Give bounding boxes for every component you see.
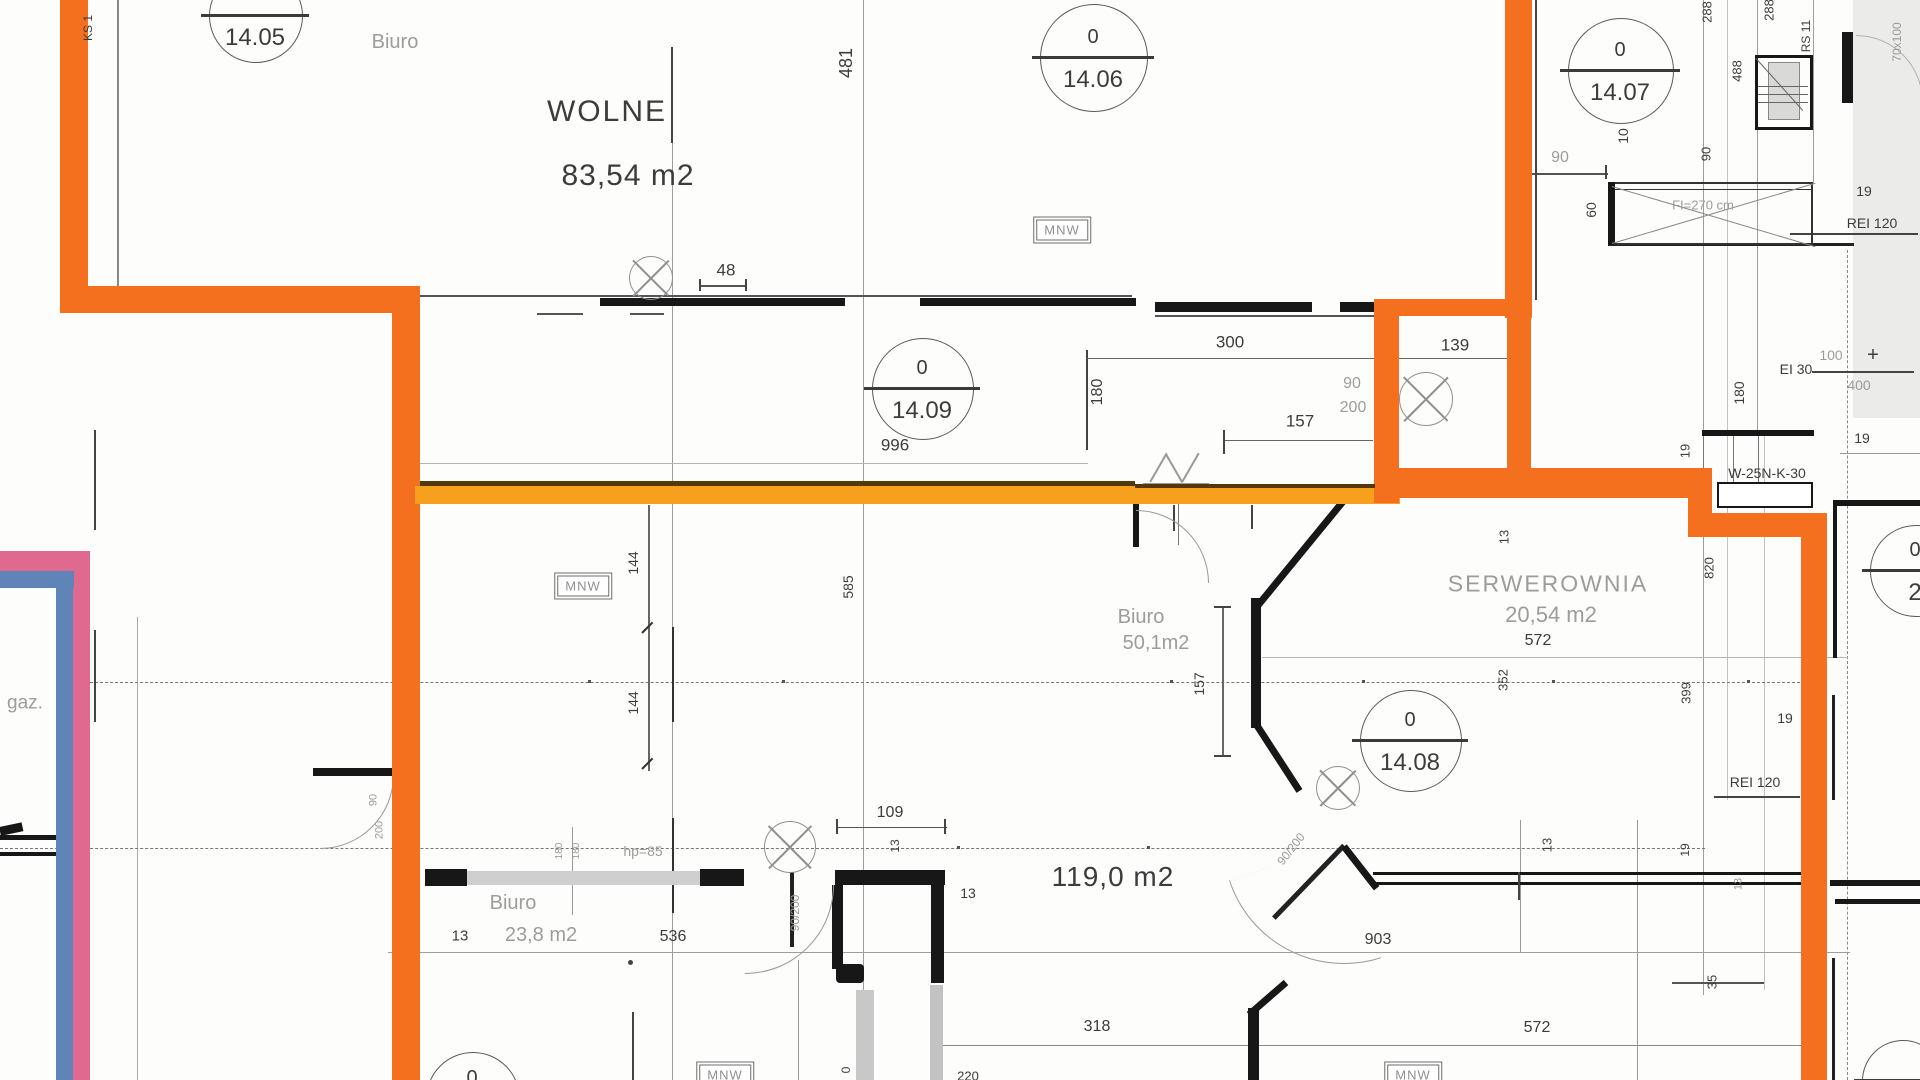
dimension-line xyxy=(1530,173,1608,175)
room-boundary-line xyxy=(420,463,1088,464)
wall-chamfer xyxy=(1254,724,1302,793)
dimension-label: 19 xyxy=(1854,431,1870,445)
dimension-label: 10 xyxy=(1616,128,1630,144)
dimension-label: 820 xyxy=(1703,557,1716,579)
door-size-label: 200 xyxy=(375,821,386,839)
bubble-divider-line xyxy=(864,387,980,390)
door-size-label: 90 xyxy=(1343,376,1361,392)
room-area-label: 23,8 m2 xyxy=(505,925,577,945)
dimension-label: 13 xyxy=(1541,838,1554,852)
wall-over-highlight xyxy=(1135,484,1375,488)
room-number-num: 14.07 xyxy=(1590,81,1650,105)
dimension-tick xyxy=(944,819,946,834)
room-number-num: 14.08 xyxy=(1380,751,1440,775)
dx-damper-icon xyxy=(629,256,673,300)
dimension-label: 536 xyxy=(660,929,687,945)
bubble-divider-line xyxy=(1352,739,1468,742)
room-number-num: 14.05 xyxy=(225,26,285,50)
dimension-label: 13 xyxy=(889,839,901,852)
bubble-divider-line xyxy=(201,14,309,17)
centerline-dot xyxy=(1170,680,1173,683)
dimension-tick xyxy=(94,430,96,530)
highlight-path-segment xyxy=(1399,468,1710,498)
centerline-dot xyxy=(1362,680,1365,683)
dimension-line xyxy=(1840,453,1920,454)
wall xyxy=(1833,500,1837,658)
wall xyxy=(1340,302,1376,312)
dx-damper-icon xyxy=(1399,372,1453,426)
highlight-path-segment xyxy=(1505,0,1532,318)
dimension-label: 903 xyxy=(1365,932,1392,948)
mnw-marker-box: MNW xyxy=(1387,1065,1439,1080)
dimension-label: 180 xyxy=(1090,379,1106,406)
centerline-dot xyxy=(957,846,960,849)
sliding-door-symbol xyxy=(1181,453,1199,482)
damper-label: W-25N-K-30 xyxy=(1728,466,1806,480)
wall-chamfer xyxy=(1255,499,1345,607)
dimension-line xyxy=(700,285,747,287)
door-size-label: 90 xyxy=(369,794,380,806)
dimension-tick xyxy=(1518,872,1520,900)
bubble-divider-line xyxy=(1560,69,1680,72)
door-leaf xyxy=(0,822,23,836)
dimension-label: 19 xyxy=(1777,711,1793,725)
room-number-num: 14.06 xyxy=(1063,68,1123,92)
duct-label: RS 11 xyxy=(1800,20,1812,52)
wall xyxy=(1251,598,1261,728)
dimension-label: 220 xyxy=(957,1070,979,1080)
grid-line xyxy=(798,960,799,1080)
centerline-dot xyxy=(588,680,591,683)
dx-damper-icon xyxy=(1316,766,1360,810)
bubble-divider-line xyxy=(1032,56,1154,59)
highlight-path-segment xyxy=(60,286,420,313)
dimension-label: 139 xyxy=(1441,337,1469,354)
fire-damper-box xyxy=(1717,482,1813,508)
highlight-path-segment xyxy=(1507,316,1531,474)
dimension-label: 352 xyxy=(1497,669,1510,691)
dimension-label: 13 xyxy=(960,886,976,900)
wall xyxy=(1155,302,1312,312)
dimension-label: 0 xyxy=(840,1067,852,1074)
pillar xyxy=(931,885,944,983)
dimension-line xyxy=(1222,607,1224,757)
pillar xyxy=(836,964,864,983)
centerline-dot xyxy=(782,680,785,683)
dimension-tick xyxy=(94,630,96,722)
pillar xyxy=(835,870,945,885)
dimension-label: 318 xyxy=(1084,1019,1111,1035)
wall xyxy=(117,0,119,296)
wall xyxy=(0,835,60,840)
dimension-label: 572 xyxy=(1524,1020,1551,1036)
mnw-marker-box: MNW xyxy=(557,576,609,597)
dimension-label: 996 xyxy=(881,437,909,454)
lintel-box xyxy=(1608,182,1615,245)
wall xyxy=(420,295,1132,297)
dimension-tick xyxy=(1605,165,1607,179)
dimension-label: 488 xyxy=(1731,60,1744,82)
wall xyxy=(1835,899,1920,904)
dimension-label: 35 xyxy=(1706,975,1719,989)
wall xyxy=(1830,880,1920,886)
vent-shaft-hatch xyxy=(1758,94,1808,95)
lintel-label: FI=270 cm xyxy=(1672,199,1734,212)
dimension-label: 288 xyxy=(1763,0,1776,21)
grid-line xyxy=(1520,820,1521,952)
room-name-label: Biuro xyxy=(1118,607,1165,627)
grid-line xyxy=(1813,0,1814,184)
shaft-wall xyxy=(856,990,874,1080)
room-number-top: 0 xyxy=(1614,40,1625,60)
highlight-path-blue xyxy=(56,571,73,1080)
highlight-path-segment xyxy=(415,486,1400,504)
wall xyxy=(1832,958,1835,1080)
wall xyxy=(1842,32,1853,103)
highlight-path-segment xyxy=(1374,300,1399,503)
grid-line xyxy=(1727,0,1728,800)
dimension-label: 13 xyxy=(1498,530,1511,544)
room-area-label: 83,54 m2 xyxy=(561,161,694,191)
room-number-top: 0 xyxy=(1909,540,1920,560)
dimension-label: 19 xyxy=(1679,843,1691,856)
dimension-label: 157 xyxy=(1286,413,1314,430)
wall xyxy=(1248,1008,1259,1080)
centerline-dot xyxy=(1147,846,1150,849)
label-underline xyxy=(1714,796,1800,798)
dimension-tick xyxy=(745,279,747,291)
vent-shaft-hatch xyxy=(1758,102,1808,103)
glazed-wall xyxy=(465,871,700,885)
door-size-label: 200 xyxy=(1340,400,1367,416)
wall xyxy=(1833,500,1920,506)
room-name-label: SERWEROWNIA xyxy=(1448,573,1648,596)
dimension-label: 180 xyxy=(555,843,565,860)
dimension-label: 109 xyxy=(877,805,904,821)
dimension-label: 19 xyxy=(1856,184,1872,198)
room-area-label: 50,1m2 xyxy=(1123,633,1190,653)
dimension-label: 300 xyxy=(1216,334,1244,351)
dimension-tick xyxy=(1214,606,1231,608)
dimension-tick xyxy=(1251,505,1253,529)
room-name-label: Biuro xyxy=(490,893,537,913)
mnw-marker-box: MNW xyxy=(699,1065,751,1080)
wall xyxy=(1155,315,1375,317)
dimension-label: 100 xyxy=(1819,348,1842,362)
bubble-divider-line xyxy=(1862,569,1920,572)
dimension-label: 585 xyxy=(841,575,855,598)
wall xyxy=(920,298,1136,306)
room-name-label: Biuro xyxy=(372,32,419,52)
dimension-label: 157 xyxy=(1192,672,1206,695)
wall-chamfer xyxy=(1247,980,1289,1017)
dimension-tick xyxy=(836,819,838,834)
wall xyxy=(600,298,845,306)
dimension-line xyxy=(943,1045,1803,1046)
lintel-box xyxy=(1608,189,1813,190)
dimension-label: 400 xyxy=(1847,378,1870,392)
dimension-label: 13 xyxy=(1734,878,1745,890)
label-underline xyxy=(1812,371,1914,373)
parapet-label: hp=85 xyxy=(623,844,662,858)
fire-rating-label: REI 120 xyxy=(1847,216,1898,230)
room-boundary-line xyxy=(388,952,1850,953)
wall xyxy=(425,869,467,886)
dimension-label: 144 xyxy=(626,691,640,714)
mnw-marker-box: MNW xyxy=(1036,220,1088,241)
utility-label: gaz. xyxy=(7,694,43,713)
dimension-label: 48 xyxy=(717,262,736,279)
wall xyxy=(1535,0,1537,300)
room-boundary-line xyxy=(1262,657,1848,658)
grid-line xyxy=(671,47,673,143)
grid-line xyxy=(863,0,864,1080)
room-area-label: 119,0 m2 xyxy=(1052,863,1175,891)
wall xyxy=(1832,695,1835,800)
dimension-label: 572 xyxy=(1525,633,1552,649)
centerline-dot xyxy=(1747,680,1750,683)
door-size-label: 90/200 xyxy=(789,895,801,932)
dimension-label: + xyxy=(1867,345,1879,365)
highlight-path-segment xyxy=(60,0,88,298)
dimension-tick xyxy=(1214,755,1231,757)
pillar xyxy=(832,885,843,969)
wall-over-highlight xyxy=(420,481,1135,486)
dimension-line xyxy=(837,827,947,828)
dimension-line xyxy=(1087,358,1521,359)
dimension-line xyxy=(648,505,650,771)
room-number-num: 14.09 xyxy=(892,399,952,423)
dimension-label: 399 xyxy=(1680,682,1693,704)
room-number-num: 2 xyxy=(1908,581,1920,605)
sliding-door-symbol xyxy=(1149,453,1167,482)
floor-plan: 90200 14.05014.06014.07014.09014.08020 M… xyxy=(0,0,1920,1080)
sliding-door-symbol xyxy=(1165,453,1183,482)
dimension-label: 481 xyxy=(837,48,855,78)
centerline-dot xyxy=(628,960,633,965)
dimension-line xyxy=(1223,440,1373,441)
dimension-label: 180 xyxy=(1732,381,1746,404)
highlight-path-pink xyxy=(72,551,90,1080)
dimension-tick xyxy=(672,818,674,913)
dimension-tick xyxy=(699,279,701,291)
room-area-label: 20,54 m2 xyxy=(1505,604,1597,626)
grid-line xyxy=(1637,820,1638,1080)
centerline xyxy=(0,848,1705,849)
room-number-top: 0 xyxy=(466,1068,477,1080)
highlight-path-segment xyxy=(392,298,420,1080)
dimension-label: 180 xyxy=(572,843,582,860)
dimension-label: 60 xyxy=(1584,202,1598,218)
dx-damper-icon xyxy=(764,821,816,873)
shaft-wall xyxy=(930,985,943,1080)
duct-label: KS 1 xyxy=(82,15,94,41)
duct-label: 70x100 xyxy=(1891,22,1903,61)
dimension-line xyxy=(1086,350,1088,450)
door-swing-arc xyxy=(1136,510,1209,583)
axis-line xyxy=(1847,250,1848,1080)
wall xyxy=(700,869,744,886)
room-number-top: 0 xyxy=(1404,710,1415,730)
dimension-label: 90 xyxy=(1551,150,1569,166)
dimension-label: 13 xyxy=(452,929,469,944)
dimension-label: 144 xyxy=(626,551,640,574)
fire-rating-label: REI 120 xyxy=(1730,775,1781,789)
wall xyxy=(0,852,60,856)
room-number-top: 0 xyxy=(916,358,927,378)
fire-rating-label: EI 30 xyxy=(1780,362,1813,376)
room-number-bubble xyxy=(1862,1040,1920,1080)
dimension-line xyxy=(632,1012,634,1080)
room-number-top: 0 xyxy=(1087,27,1098,47)
wall xyxy=(537,313,583,315)
dimension-label: 19 xyxy=(1679,444,1692,458)
dimension-label: 288 xyxy=(1701,1,1714,23)
dimension-label: 90 xyxy=(1700,147,1713,161)
highlight-path-segment xyxy=(1801,513,1827,1080)
room-status-label: WOLNE xyxy=(547,97,667,127)
dimension-tick xyxy=(672,627,674,722)
wall xyxy=(630,313,664,315)
centerline-dot xyxy=(1552,680,1555,683)
dimension-tick xyxy=(1223,430,1225,454)
